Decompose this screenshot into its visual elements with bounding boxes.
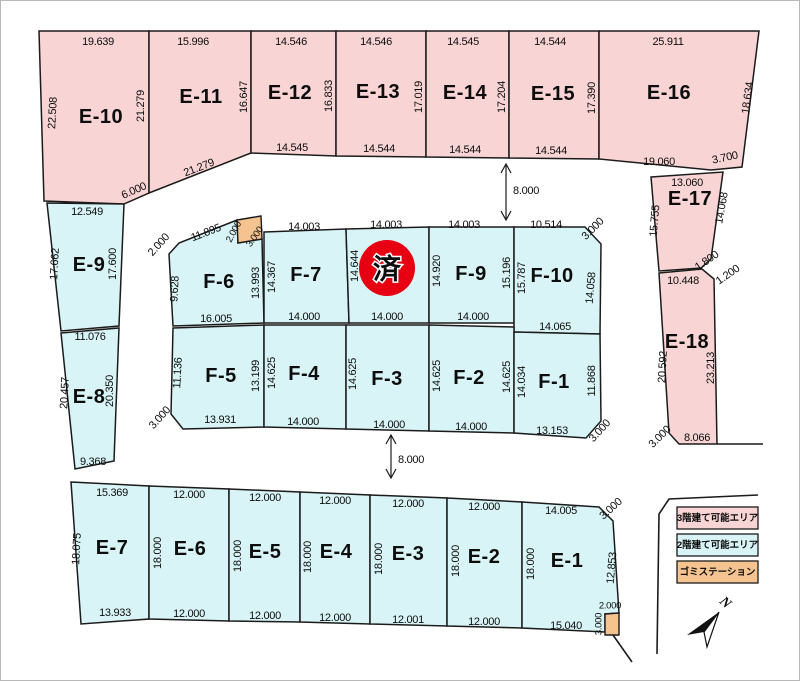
dim-label-e-15: 14.544 <box>535 145 567 157</box>
dim-label-f-6: 16.005 <box>200 313 232 325</box>
dim-label-f-8: 14.003 <box>370 219 402 231</box>
dim-label-e-14: 17.204 <box>496 81 508 113</box>
legend-station-label: ゴミステーション <box>680 566 756 578</box>
garbage-station-dim-label: 3.000 <box>594 613 605 635</box>
lot-e-18-label: E-18 <box>665 331 709 353</box>
lot-f-5-label: F-5 <box>205 365 237 387</box>
dim-label-e-11: 16.647 <box>238 81 250 113</box>
dim-label-e-1: 14.005 <box>545 505 577 517</box>
dim-label-e-9: 12.549 <box>71 206 103 218</box>
legend-zone3-label: 3階建て可能エリア <box>677 512 759 524</box>
dim-label-f-7: 14.367 <box>266 261 278 293</box>
dim-label-e-6: 12.000 <box>173 608 205 620</box>
road-outline <box>613 635 632 662</box>
north-label: N <box>715 593 734 612</box>
dim-label-e-7: 18.075 <box>70 533 84 566</box>
dim-label-e-5: 12.000 <box>249 492 281 504</box>
legend-zone2-label: 2階建て可能エリア <box>677 539 759 551</box>
dim-label-f-3: 14.000 <box>373 419 405 431</box>
dim-label-f-2: 14.625 <box>431 360 443 392</box>
lot-e-4-label: E-4 <box>320 541 353 563</box>
dim-label-f-10: 15.787 <box>516 262 528 294</box>
dim-label-e-8: 11.076 <box>74 331 105 343</box>
dim-label-f-10: 14.065 <box>539 321 571 333</box>
dim-label-e-8: 20.350 <box>104 375 116 407</box>
dim-label-e-8: 9.368 <box>80 456 106 468</box>
lot-e-3-label: E-3 <box>392 543 425 565</box>
lot-f-9-label: F-9 <box>455 263 487 285</box>
lot-e-2-label: E-2 <box>468 546 501 568</box>
dim-label-f-5: 13.931 <box>204 414 236 426</box>
dim-label-f-1: 13.153 <box>536 425 568 437</box>
dim-label-e-18: 10.448 <box>667 275 699 287</box>
dim-label-e-9: 17.662 <box>48 248 62 281</box>
garbage-station-dim-label: 2.000 <box>599 601 621 612</box>
dim-label-e-18: 20.592 <box>656 351 670 384</box>
dim-label-e-1: 15.040 <box>550 620 582 632</box>
lot-e-8-label: E-8 <box>73 386 106 408</box>
lot-e-16-label: E-16 <box>647 82 691 104</box>
dim-label-f-8: 14.000 <box>371 311 403 323</box>
lot-f-1-label: F-1 <box>538 371 570 393</box>
dim-label-e-6: 12.000 <box>173 489 205 501</box>
dim-label-e-10: 21.279 <box>135 90 147 122</box>
dim-label-f-3: 14.625 <box>347 358 359 390</box>
dim-label-e-1: 18.000 <box>525 548 537 580</box>
dim-label-e-3: 18.000 <box>373 543 385 575</box>
sold-mark-label: 済 <box>373 254 402 285</box>
lot-e-11-label: E-11 <box>179 86 222 108</box>
dim-label-e-2: 12.000 <box>468 501 500 513</box>
lot-f-6-label: F-6 <box>203 271 235 293</box>
dim-label-e-3: 12.000 <box>392 498 424 510</box>
dim-label-e-12: 14.546 <box>275 36 307 48</box>
dim-label-e-10: 19.639 <box>82 36 114 48</box>
dim-label-f-1: 14.034 <box>516 366 528 398</box>
dim-label-f-1: 11.868 <box>586 365 598 396</box>
lot-f-4-label: F-4 <box>288 363 320 385</box>
lot-f-10-label: F-10 <box>530 265 573 287</box>
lot-e-14-label: E-14 <box>443 82 488 104</box>
dim-label-e-4: 12.000 <box>319 495 351 507</box>
dim-label-e-12: 16.833 <box>323 80 335 112</box>
lot-e-5-label: E-5 <box>249 541 282 563</box>
dim-label-e-16: 19.060 <box>643 156 675 168</box>
dim-label-e-3: 12.001 <box>392 614 424 626</box>
site-map: 19.63922.50821.2796.000E-1015.99616.6472… <box>1 1 799 680</box>
dim-label-e-14: 14.545 <box>447 36 479 48</box>
dim-label-e-15: 17.390 <box>586 82 598 114</box>
dim-label-e-13: 17.019 <box>413 81 425 113</box>
lot-e-6-label: E-6 <box>174 538 207 560</box>
dim-label-e-12: 14.545 <box>276 142 308 154</box>
dim-label-f-9: 14.000 <box>457 311 489 323</box>
dim-label-e-7: 13.933 <box>99 607 131 619</box>
dim-label-f-10: 10.514 <box>530 219 562 231</box>
dim-label-e-5: 12.000 <box>249 610 281 622</box>
lot-f-2-label: F-2 <box>453 367 485 389</box>
dim-label-e-10: 22.508 <box>46 97 60 130</box>
dim-label-e-4: 18.000 <box>302 541 314 573</box>
dim-label-f-7: 14.000 <box>288 311 320 323</box>
dim-label-e-5: 18.000 <box>232 540 244 572</box>
dim-label-e-18: 1.200 <box>714 263 742 288</box>
garbage-station-shape <box>605 613 619 635</box>
dim-label-e-18: 23.213 <box>705 352 717 384</box>
dim-label-f-9: 14.920 <box>431 255 443 287</box>
dim-label-f-2: 14.000 <box>455 421 487 433</box>
dim-label-f-7: 14.003 <box>288 221 320 233</box>
dim-label-e-13: 14.546 <box>360 36 392 48</box>
dim-label-f-4: 14.000 <box>287 416 319 428</box>
dim-label-f-9: 14.003 <box>448 219 480 231</box>
dim-label-e-7: 15.369 <box>96 487 128 499</box>
dim-label-e-4: 12.000 <box>319 612 351 624</box>
dim-label-e-16: 25.911 <box>652 36 683 48</box>
lot-e-9-label: E-9 <box>73 254 106 276</box>
dim-label-f-6: 13.993 <box>250 267 262 299</box>
dim-label-e-6: 18.000 <box>152 537 164 569</box>
dim-label-f-9: 15.196 <box>501 257 513 289</box>
dim-label-e-2: 18.000 <box>450 545 462 577</box>
dim-label-f-5: 11.136 <box>171 357 185 389</box>
lot-f-7-label: F-7 <box>290 264 322 286</box>
lot-e-7-label: E-7 <box>96 537 129 559</box>
dim-label-f-4: 14.625 <box>266 357 278 389</box>
dim-label-e-8: 20.457 <box>58 377 72 410</box>
dim-label-e-13: 14.544 <box>363 143 395 155</box>
dim-label-e-14: 14.544 <box>449 144 481 156</box>
lot-e-10-label: E-10 <box>79 106 123 128</box>
lot-e-13-label: E-13 <box>356 81 400 103</box>
site-plan-page: 19.63922.50821.2796.000E-1015.99616.6472… <box>0 0 800 681</box>
dim-label-f-5: 13.199 <box>250 360 262 392</box>
dim-label-e-9: 17.600 <box>107 248 119 280</box>
dim-label-f-2: 14.625 <box>501 361 513 393</box>
lot-e-12-label: E-12 <box>268 82 312 104</box>
road-width-label: 8.000 <box>513 185 539 197</box>
dim-label-e-15: 14.544 <box>534 36 566 48</box>
dim-label-f-6: 9.628 <box>168 276 181 303</box>
lot-e-1-label: E-1 <box>551 550 584 572</box>
north-arrow-icon <box>704 612 719 647</box>
road-width-label: 8.000 <box>398 454 424 466</box>
dim-label-f-5: 3.000 <box>147 404 173 432</box>
lot-e-15-label: E-15 <box>531 83 575 105</box>
lot-f-3-label: F-3 <box>371 368 403 390</box>
dim-label-e-2: 12.000 <box>468 616 500 628</box>
dim-label-e-11: 15.996 <box>177 36 209 48</box>
lot-e-17-label: E-17 <box>668 188 712 210</box>
dim-label-e-18: 8.066 <box>684 432 710 444</box>
